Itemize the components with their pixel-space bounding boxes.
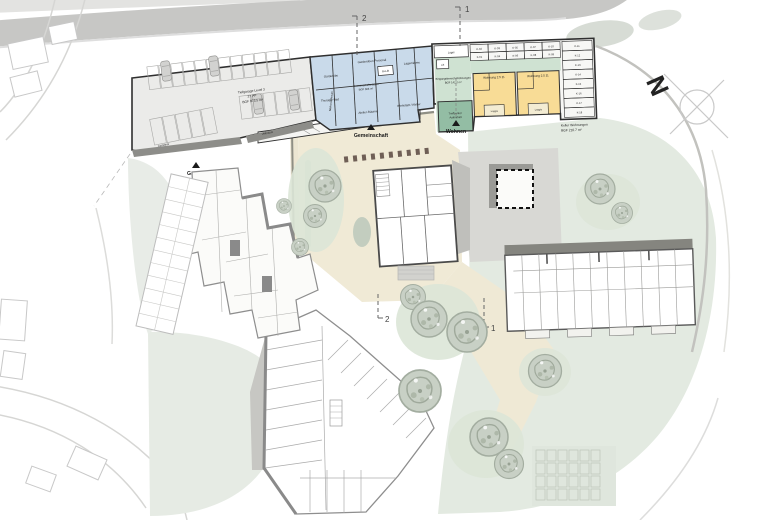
tree <box>309 170 341 202</box>
svg-text:Loggia: Loggia <box>535 108 543 111</box>
site-plan-page: Tiefgarage Level 3 27 PP BGF 973.5 m² Ra… <box>0 0 780 520</box>
svg-text:K-12: K-12 <box>575 53 581 57</box>
tree <box>304 205 327 228</box>
tree <box>411 301 447 337</box>
entrance-triangle <box>192 162 200 168</box>
section-2-bottom: 2 <box>385 315 390 324</box>
svg-text:K-06: K-06 <box>513 53 519 57</box>
svg-text:Wohnung 2.5 Zi.: Wohnung 2.5 Zi. <box>527 73 549 78</box>
svg-text:K-10: K-10 <box>548 44 554 48</box>
lift-label: B+Lift <box>382 69 390 74</box>
svg-text:K-05: K-05 <box>512 45 518 49</box>
entry-steps <box>398 266 434 280</box>
svg-text:K-14: K-14 <box>575 72 581 76</box>
treffpunkt-label: Treffpunkt / <box>449 111 463 115</box>
section-1-bottom: 1 <box>491 324 496 333</box>
svg-text:K-11: K-11 <box>574 44 580 48</box>
parcel-line <box>94 154 130 206</box>
svg-text:Wohnung 2.5 Zi.: Wohnung 2.5 Zi. <box>483 75 505 80</box>
svg-text:K-16: K-16 <box>576 91 582 95</box>
tree <box>585 174 615 204</box>
svg-text:K-15: K-15 <box>576 82 582 86</box>
svg-text:K-01: K-01 <box>477 55 483 59</box>
svg-text:K-04: K-04 <box>495 54 501 58</box>
entrance-label-wohnen: Wohnen <box>446 129 466 135</box>
pavilion <box>497 170 533 208</box>
tree <box>292 239 309 256</box>
community-rooms: B+Lift Garderobe Garderoben Personal Lag… <box>310 46 434 130</box>
stair-core <box>262 276 272 292</box>
tree <box>470 418 508 456</box>
tree <box>495 450 524 479</box>
compass: N <box>640 71 728 138</box>
lager-label: Lager <box>448 50 455 54</box>
section-1-top: 1 <box>465 5 470 14</box>
section-2-top: 2 <box>362 14 367 23</box>
tree <box>399 370 441 412</box>
svg-text:K-02: K-02 <box>476 47 482 51</box>
svg-text:K-13: K-13 <box>575 63 581 67</box>
neighbor-houses <box>0 21 107 491</box>
svg-text:K-18: K-18 <box>577 110 583 114</box>
apartment-1: Wohnung 2.5 Zi. Loggia <box>473 72 516 116</box>
svg-text:K-07: K-07 <box>530 45 536 49</box>
site-plan-drawing: Tiefgarage Level 3 27 PP BGF 973.5 m² Ra… <box>0 0 780 520</box>
svg-text:K-17: K-17 <box>576 101 582 105</box>
tree <box>529 355 562 388</box>
tree <box>277 199 292 214</box>
stair-core <box>230 240 240 256</box>
tree <box>447 312 487 352</box>
keller-label: BGF 210.7 m² <box>561 128 583 133</box>
east-building <box>504 239 695 340</box>
svg-text:Loggia: Loggia <box>491 110 499 113</box>
apartment-2: Wohnung 2.5 Zi. Loggia <box>517 71 560 115</box>
garden-plots <box>532 446 616 506</box>
entrance-label-gemeinschaft: Gemeinschaft <box>354 133 389 139</box>
tree <box>612 203 633 224</box>
svg-text:K-09: K-09 <box>549 52 555 56</box>
entry-area-label: BGF 142.2 m² <box>445 80 462 85</box>
svg-text:K-08: K-08 <box>531 53 537 57</box>
lift-label: Lift <box>441 64 445 67</box>
terrace-hedge <box>353 217 371 247</box>
svg-text:K-03: K-03 <box>494 46 500 50</box>
